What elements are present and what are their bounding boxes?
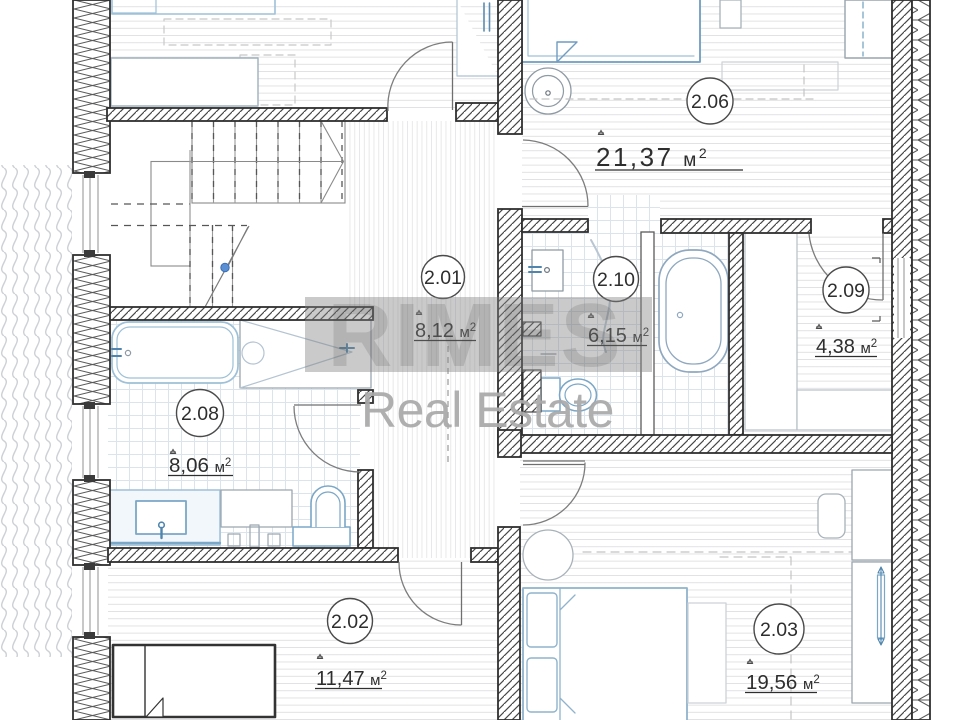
svg-text:2.03: 2.03 <box>760 619 798 641</box>
svg-text:2.08: 2.08 <box>181 403 219 425</box>
svg-text:4,38 м2: 4,38 м2 <box>816 336 877 358</box>
svg-text:11,47 м2: 11,47 м2 <box>316 668 387 690</box>
svg-text:2.06: 2.06 <box>691 91 729 113</box>
svg-text:Real Estate: Real Estate <box>361 382 614 438</box>
svg-text:2.02: 2.02 <box>331 611 369 633</box>
svg-text:2.09: 2.09 <box>827 280 865 302</box>
svg-text:RIMES: RIMES <box>327 286 622 386</box>
